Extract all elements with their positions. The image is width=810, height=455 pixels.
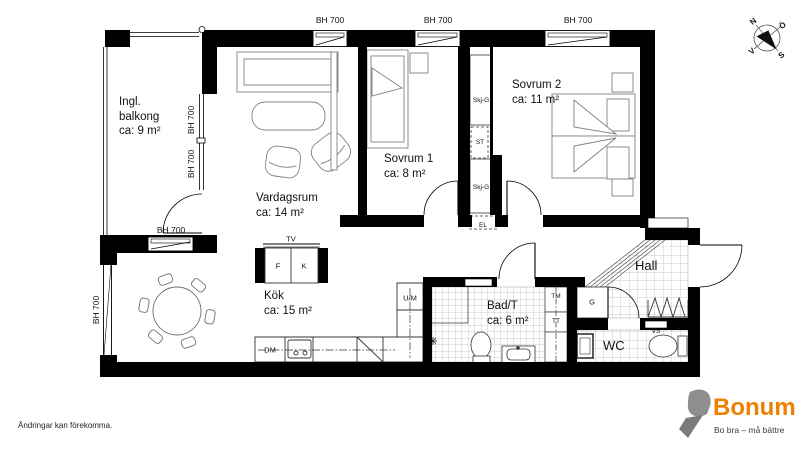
window-height-label: BH 700 <box>564 15 592 25</box>
water-shunt-niche <box>645 321 667 328</box>
room-area: ca: 6 m² <box>487 314 529 329</box>
water-shunt-label: VS <box>652 328 661 336</box>
sliding-wardrobe-label: Skj-G <box>473 97 489 105</box>
door-entrance <box>700 245 742 287</box>
compass-east: Ö <box>777 20 788 31</box>
freezer-label: K <box>301 262 306 271</box>
electrical-label: EL <box>479 222 487 230</box>
door-bedroom1 <box>424 181 458 215</box>
room-label-kitchen: Kök ca: 15 m² <box>264 289 312 318</box>
mattress <box>371 56 404 142</box>
window-height-label: BH 700 <box>186 150 196 178</box>
room-area: ca: 8 m² <box>384 167 433 182</box>
fridge-label: F <box>276 262 281 271</box>
room-name: Vardagsrum <box>256 191 318 206</box>
window-height-label: BH 700 <box>424 15 452 25</box>
chair <box>180 336 196 349</box>
room-label-hall: Hall <box>635 258 657 274</box>
bedroom2-furniture <box>552 73 635 196</box>
sofa-seat <box>244 59 331 85</box>
window-height-label: BH 700 <box>316 15 344 25</box>
disclaimer-text: Ändringar kan förekomma. <box>18 421 112 431</box>
room-area: ca: 14 m² <box>256 206 318 221</box>
room-area: ca: 15 m² <box>264 304 312 319</box>
tumble-dryer-label: TT <box>552 318 560 326</box>
wall-niche <box>465 279 492 286</box>
room-area: ca: 9 m² <box>119 124 175 139</box>
chair <box>204 309 215 324</box>
dining-table <box>153 287 201 335</box>
dining-set <box>138 273 215 349</box>
fridge-freezer-unit <box>255 244 328 283</box>
washing-machine-label: TM <box>551 293 560 301</box>
room-label-livingroom: Vardagsrum ca: 14 m² <box>256 191 318 220</box>
window <box>148 237 193 251</box>
window-height-label: BH 700 <box>157 225 185 235</box>
floorplan-drawing: N Ö S V <box>0 0 810 455</box>
sliding-wardrobe-label: Skj-G <box>473 184 489 192</box>
room-name: Bad/T <box>487 299 529 314</box>
pillow <box>607 99 629 131</box>
bedside-table <box>410 53 428 73</box>
room-area: ca: 11 m² <box>512 93 561 108</box>
door-bathroom <box>499 243 535 279</box>
coffee-table <box>252 102 325 130</box>
door-bedroom2 <box>507 181 541 215</box>
wardrobe-label: G <box>589 298 595 307</box>
chair <box>157 273 173 286</box>
window <box>313 31 347 47</box>
window-height-label: BH 700 <box>91 296 101 324</box>
bedside-table <box>612 73 633 92</box>
window <box>100 265 117 355</box>
compass-north: N <box>748 16 758 27</box>
compass-icon: N Ö S V <box>733 3 802 73</box>
room-label-bathroom: Bad/T ca: 6 m² <box>487 299 529 328</box>
toilet <box>471 332 491 358</box>
room-name: Sovrum 2 <box>512 78 561 93</box>
room-label-balcony: Ingl. balkong ca: 9 m² <box>119 95 175 139</box>
tv-label: TV <box>286 235 296 244</box>
toilet-tank <box>473 356 490 363</box>
room-name: Kök <box>264 289 312 304</box>
toilet-tank <box>678 336 687 356</box>
chair <box>147 329 164 345</box>
oven-microwave-label: U/M <box>403 294 417 303</box>
room-label-bedroom1: Sovrum 1 ca: 8 m² <box>384 152 433 181</box>
room-label-bedroom2: Sovrum 2 ca: 11 m² <box>512 78 561 107</box>
sliding-wardrobe <box>470 55 491 125</box>
window <box>415 31 460 47</box>
cleaning-closet-label: ST <box>476 139 484 147</box>
window <box>545 31 610 47</box>
room-name: Ingl. balkong <box>119 95 175 124</box>
brand-glyph-icon <box>679 390 711 439</box>
bedside-table <box>612 179 633 196</box>
room-name: Sovrum 1 <box>384 152 433 167</box>
entrance-niche <box>648 218 688 228</box>
room-label-wc: WC <box>603 338 625 354</box>
floorplan-page: N Ö S V Ingl. balkong ca: 9 m² Vardagsru… <box>0 0 810 455</box>
brand-tagline: Bo bra – må bättre <box>714 425 784 435</box>
compass-south: S <box>777 50 787 61</box>
livingroom-furniture <box>237 52 355 179</box>
toilet <box>649 335 677 357</box>
brand-name: Bonum <box>713 394 796 423</box>
dishwasher-label: DM <box>264 346 276 355</box>
chair <box>190 277 207 293</box>
sink <box>288 340 311 358</box>
window-height-label: BH 700 <box>186 106 196 134</box>
pillow <box>607 147 629 179</box>
bedroom1-furniture <box>367 50 428 148</box>
shelf <box>331 52 337 170</box>
armchair <box>264 145 302 179</box>
chair <box>138 298 149 313</box>
